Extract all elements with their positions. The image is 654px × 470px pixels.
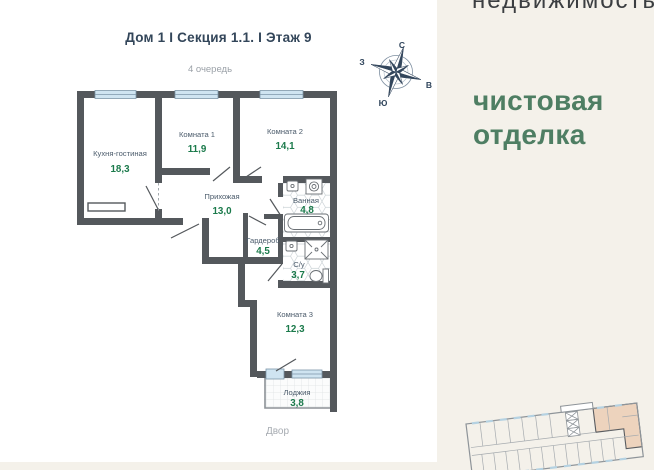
right-panel: недвижимость чистовая отделка (437, 0, 654, 470)
compass-west-label: З (359, 57, 364, 67)
room-label: Прихожая (204, 192, 239, 201)
finish-type-label: чистовая отделка (473, 84, 604, 152)
room-area: 12,3 (285, 324, 305, 335)
room-area: 18,3 (110, 164, 130, 175)
room-area: 3,7 (291, 270, 305, 281)
compass-south-label: Ю (379, 98, 388, 108)
finish-line1: чистовая (473, 84, 604, 118)
room-area: 3,8 (290, 398, 304, 409)
room-label: Лоджия (284, 388, 311, 397)
room-area: 14,1 (275, 141, 295, 152)
room-label: Гардероб (246, 236, 280, 245)
room-area: 4,5 (256, 246, 270, 257)
brand-logo-text: недвижимость (472, 0, 654, 15)
room-label: Комната 3 (277, 310, 313, 319)
room-label: Комната 1 (179, 130, 215, 139)
compass-icon: С З В Ю (359, 40, 432, 108)
toilet-tank-icon (323, 269, 329, 283)
finish-line2: отделка (473, 118, 604, 152)
sink-icon (287, 181, 298, 191)
floorplan-drawing: Кухня-гостиная 18,3 Комната 1 11,9 Комна… (0, 0, 437, 462)
room-label: Кухня-гостиная (93, 149, 147, 158)
room-area: 13,0 (212, 206, 232, 217)
room-area: 11,9 (188, 144, 207, 155)
yard-label: Двор (180, 426, 375, 437)
room-label: Комната 2 (267, 127, 303, 136)
floorplan-card: Дом 1 I Секция 1.1. I Этаж 9 4 очередь (0, 0, 437, 462)
wc-sink-icon (286, 241, 297, 251)
compass-east-label: В (426, 80, 432, 90)
washing-machine-icon (306, 179, 322, 194)
room-label: Ванная (293, 196, 319, 205)
kitchen-counter (88, 203, 125, 211)
compass-north-label: С (399, 40, 405, 50)
room-area: 4,8 (300, 205, 314, 216)
room-label: С/у (293, 260, 305, 269)
toilet-bowl-icon (310, 271, 322, 282)
